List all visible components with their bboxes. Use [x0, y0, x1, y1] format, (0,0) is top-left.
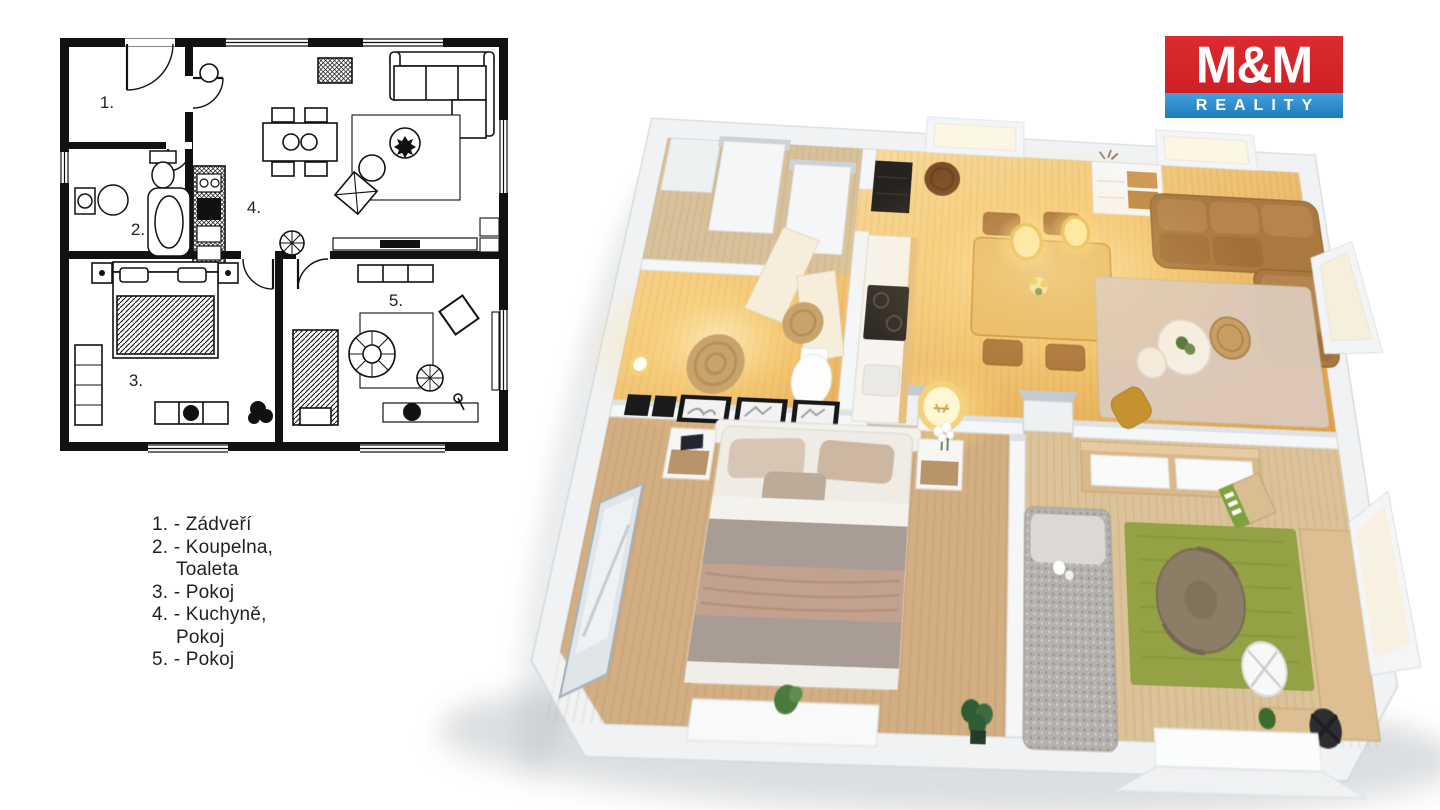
legend-item-1: 1. - Zádveří: [152, 514, 273, 537]
legend-item-2b: Toaleta: [152, 559, 273, 582]
real-estate-floorplan-image: 1. 2. 3. 4. 5. 1. - Zádveří 2. - Koupeln…: [0, 0, 1440, 810]
room-3-number: 3.: [129, 371, 143, 390]
legend: 1. - Zádveří 2. - Koupelna, Toaleta 3. -…: [152, 514, 273, 672]
mm-reality-logo: M&M REALITY: [1165, 36, 1343, 118]
room-5-number: 5.: [389, 291, 403, 310]
logo-banner: REALITY: [1165, 93, 1343, 118]
room-4-number: 4.: [247, 198, 261, 217]
legend-item-4b: Pokoj: [152, 627, 273, 650]
legend-item-4: 4. - Kuchyně,: [152, 604, 273, 627]
logo-subtitle: REALITY: [1188, 97, 1320, 115]
legend-item-2: 2. - Koupelna,: [152, 537, 273, 560]
logo-mark: M&M: [1165, 36, 1343, 93]
room-1-number: 1.: [100, 93, 114, 112]
legend-item-3: 3. - Pokoj: [152, 582, 273, 605]
room-2-number: 2.: [131, 220, 145, 239]
floorplan-2d: 1. 2. 3. 4. 5.: [60, 38, 508, 453]
logo-title: M&M: [1196, 34, 1312, 94]
legend-item-5: 5. - Pokoj: [152, 649, 273, 672]
floorplan-3d-render: [480, 20, 1440, 810]
